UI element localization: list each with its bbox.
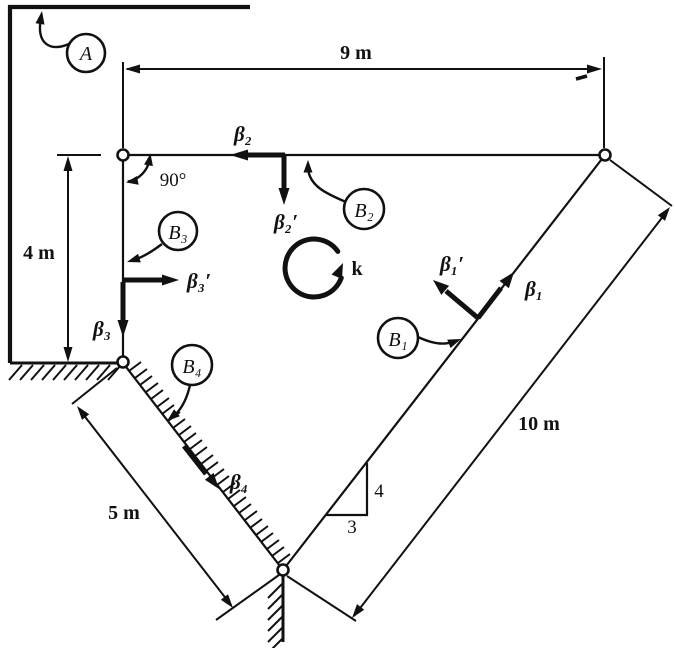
vector-beta3-head <box>118 320 129 337</box>
vector-beta1-prime-shaft <box>446 291 478 318</box>
joint-top-right <box>600 150 611 161</box>
joint-bottom-left <box>118 357 129 368</box>
vector-beta3-prime-label: β₃′ <box>186 269 211 293</box>
node-A-label: A <box>78 43 93 65</box>
node-A-leader-arrow <box>36 11 45 25</box>
dim-9m-extension-lines <box>123 57 604 148</box>
node-B2-leader-arrow <box>304 160 313 173</box>
dim-5m-arrow-bottom <box>221 594 233 608</box>
dim-10m-extension-lines <box>287 160 672 621</box>
right-angle-label: 90° <box>160 170 187 191</box>
joint-top-left <box>118 150 129 161</box>
rotation-arrow-head <box>332 263 344 279</box>
dim-10m-arrow-top <box>658 207 670 221</box>
node-B4-leader <box>175 385 190 415</box>
vector-beta2-head <box>230 150 248 161</box>
frame-diagram-canvas: 9 m 4 m 5 m 10 m 4 3 90° k β₂ β₂′ β₃′ β₃… <box>0 0 675 648</box>
vector-beta1-label: β₁ <box>524 277 543 301</box>
member-diagonal-10m <box>283 155 605 570</box>
dim-9m-tick-mark <box>576 76 587 79</box>
vector-beta2-prime-head <box>279 188 290 205</box>
vector-beta1-prime-label: β₁′ <box>439 252 464 276</box>
slope-rise-label: 4 <box>374 481 384 502</box>
dim-4m-arrow-top <box>64 156 73 171</box>
vector-beta3-label: β₃ <box>92 317 111 341</box>
vector-beta4-label: β₄ <box>229 470 248 494</box>
dim-9m-label: 9 m <box>340 42 372 64</box>
dim-4m-arrow-bottom <box>64 347 73 362</box>
dim-5m-extension-lines <box>72 368 279 620</box>
node-B3-leader <box>136 244 162 259</box>
left-wall-outline <box>10 7 250 363</box>
slope-run-label: 3 <box>347 517 357 538</box>
node-B2-label: B₂ <box>354 200 373 222</box>
dim-4m-label: 4 m <box>23 242 55 264</box>
node-B3-label: B₃ <box>168 222 187 244</box>
dim-5m-label: 5 m <box>108 502 140 524</box>
dim-9m-arrow-right <box>587 65 602 74</box>
vector-beta2-label: β₂ <box>233 122 252 146</box>
dim-10m-label: 10 m <box>518 413 560 435</box>
vector-beta1-head <box>500 272 515 288</box>
incline-hatching <box>129 362 290 563</box>
rotation-axis-label: k <box>351 258 363 280</box>
node-B1-label: B₁ <box>388 329 407 351</box>
dim-5m-arrow-top <box>77 406 89 420</box>
node-B4-label: B₄ <box>182 356 201 378</box>
node-B2-leader <box>308 168 346 202</box>
dim-10m-line <box>354 210 668 616</box>
dim-9m-arrow-left <box>125 65 140 74</box>
bottom-support-hatching <box>268 584 282 648</box>
node-B3-leader-arrow <box>127 254 141 263</box>
dim-5m-line <box>79 409 231 605</box>
vector-beta2-prime-label: β₂′ <box>273 210 298 234</box>
rotation-arrow-arc <box>285 239 341 297</box>
vector-beta3-prime-head <box>162 275 179 286</box>
vector-beta1-shaft <box>478 288 501 318</box>
node-B1-leader <box>418 337 452 344</box>
joint-bottom-vertex <box>278 565 289 576</box>
mechanics-frame-figure: 9 m 4 m 5 m 10 m 4 3 90° k β₂ β₂′ β₃′ β₃… <box>0 0 675 648</box>
node-A-leader <box>40 18 69 47</box>
